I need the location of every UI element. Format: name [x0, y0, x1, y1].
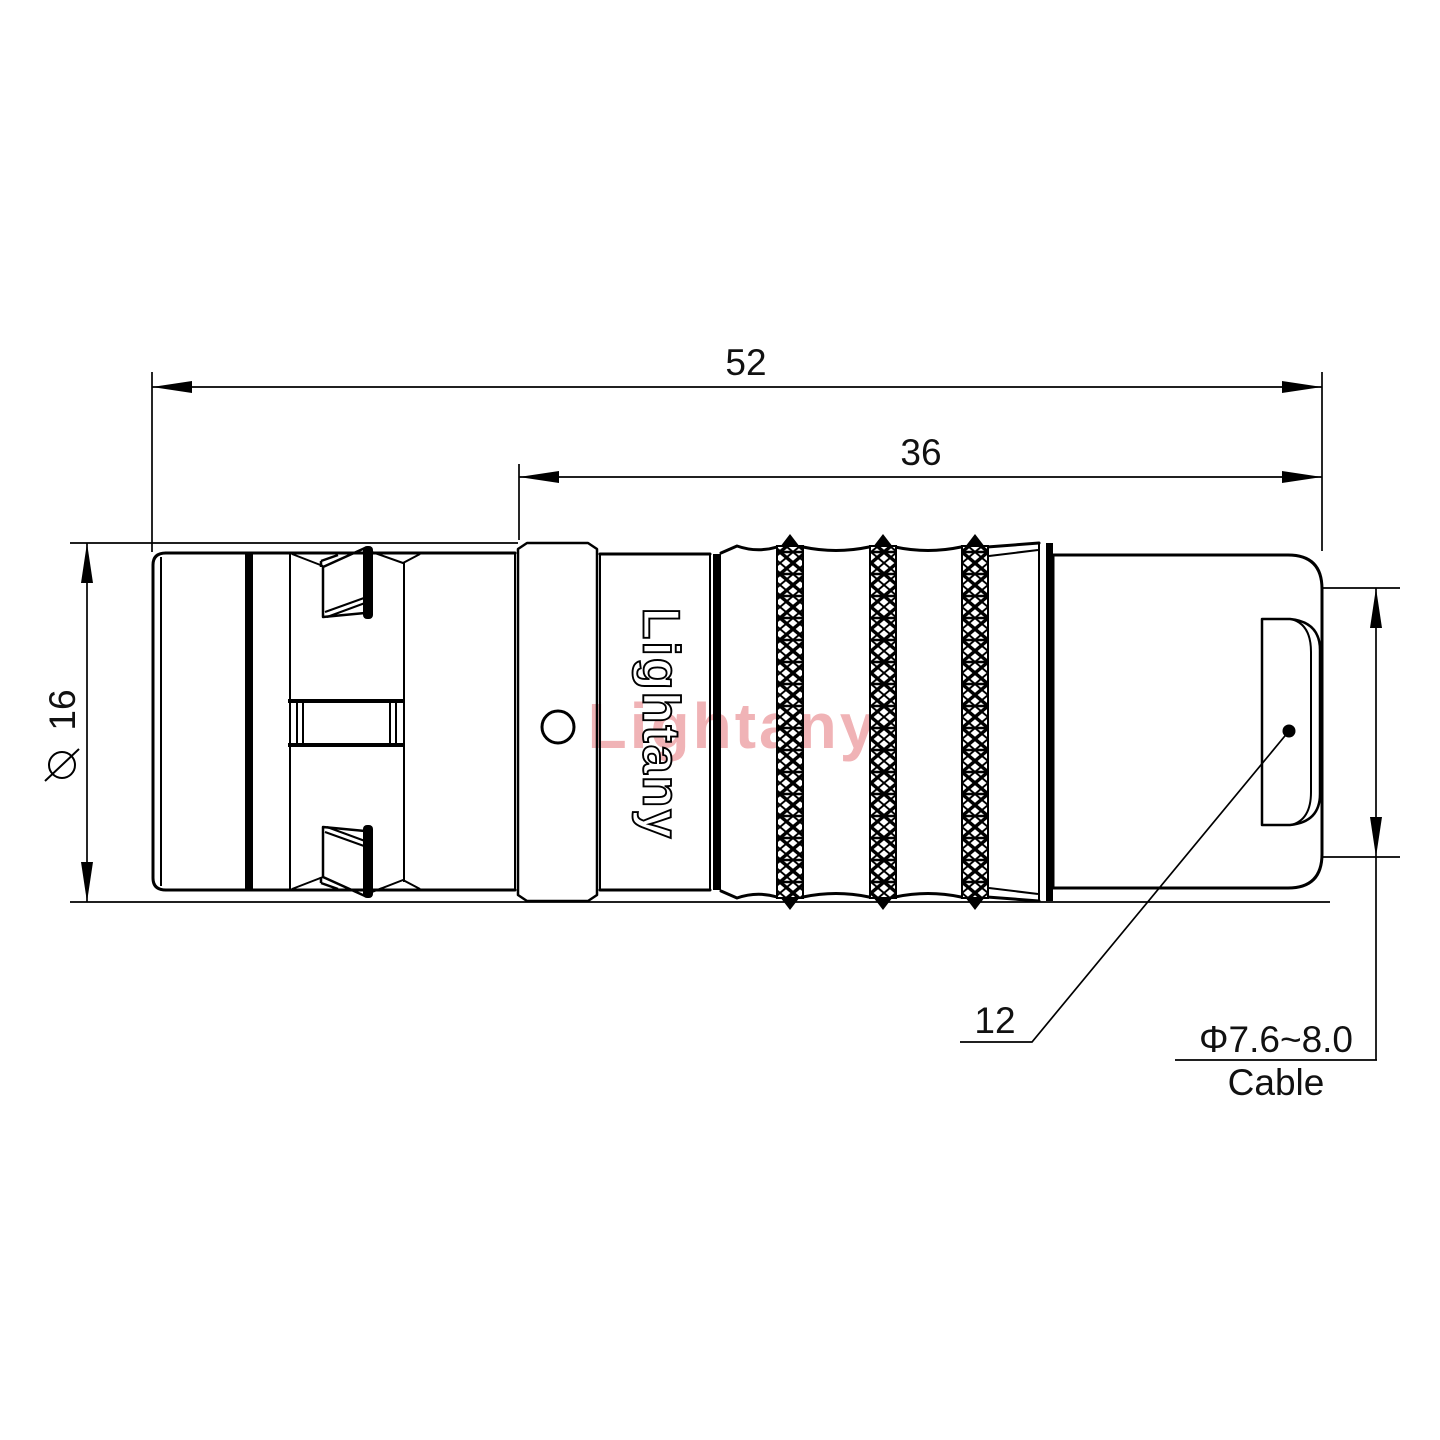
connector-drawing-svg: Lightany — [0, 0, 1440, 1440]
bayonet-key-top — [321, 546, 373, 619]
knurl-ring-2 — [870, 534, 896, 910]
overall-length-value: 52 — [725, 342, 766, 383]
bayonet-key-bottom — [321, 825, 373, 898]
dimension-overall-length: 52 — [152, 342, 1322, 552]
leader-dot — [1283, 725, 1296, 738]
technical-drawing-page: Lightany — [0, 0, 1440, 1440]
cable-range-value: Φ7.6~8.0 — [1199, 1019, 1353, 1060]
cable-boot — [1053, 555, 1322, 888]
dimension-cable-entry: Φ7.6~8.0 Cable — [1175, 588, 1400, 1103]
diameter-symbol-icon — [45, 749, 79, 781]
bayonet-middle-slot — [288, 701, 403, 745]
leader-boot-dim: 12 — [960, 725, 1296, 1043]
brand-text-vertical: Lightany — [631, 608, 689, 841]
diameter-value: 16 — [42, 689, 83, 730]
front-nut — [153, 546, 515, 898]
rear-length-value: 36 — [900, 432, 941, 473]
knurl-ring-1 — [777, 534, 803, 910]
cable-word-label: Cable — [1228, 1062, 1325, 1103]
dimension-rear-length: 36 — [519, 432, 1322, 540]
knurl-ring-3 — [962, 534, 988, 910]
cable-entry-window — [1262, 619, 1320, 825]
boot-dim-value: 12 — [974, 1000, 1015, 1041]
witness-hole — [542, 711, 574, 743]
nut-groove-band — [245, 553, 253, 890]
barrel-groove-band — [713, 554, 721, 890]
